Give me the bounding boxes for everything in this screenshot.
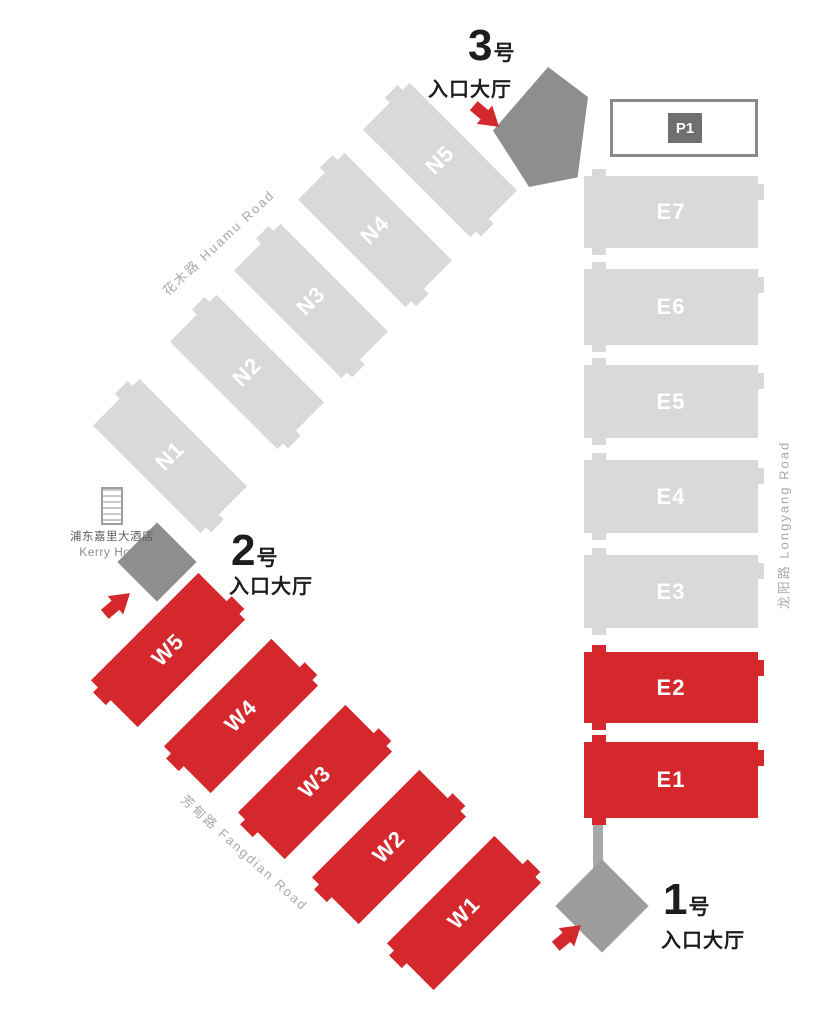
road-label-longyang: 龙阳路 Longyang Road [774,441,793,609]
entrance-3-digit: 3 [468,24,492,68]
hall-tab [757,563,764,579]
hall-w4-label: W4 [219,694,262,737]
entrance-2-unit: 号 [256,542,277,572]
hall-e6: E6 [584,269,758,345]
hall-n4-label: N4 [355,210,395,250]
entrance-2-arrow-icon [95,583,138,625]
hall-tab [757,277,764,293]
hall-w3-label: W3 [293,760,336,803]
hall-e6-label: E6 [657,294,686,320]
entrance-1-digit: 1 [663,878,687,922]
parking-p1-area: P1 [610,99,758,157]
hall-e4-label: E4 [657,484,686,510]
hall-tab [757,468,764,484]
hall-tab [757,660,764,676]
hotel-building-icon [101,487,123,525]
entrance-2-hall-label: 入口大厅 [229,570,313,599]
hall-e5-label: E5 [657,389,686,415]
entrance-3-unit: 号 [493,37,514,67]
entrance-1-number: 1 号 [663,878,709,922]
hall-n1-label: N1 [150,436,190,476]
hall-e3-label: E3 [657,579,686,605]
parking-p1-badge: P1 [668,113,702,143]
entrance-3-number: 3 号 [468,24,514,68]
hall-w1-label: W1 [442,891,485,934]
entrance-3-hall-label: 入口大厅 [428,73,512,102]
entrance-2-digit: 2 [231,529,255,573]
hall-e1-label: E1 [657,767,686,793]
entrance-2-number: 2 号 [231,529,277,573]
hall-e7-label: E7 [657,199,686,225]
hall-w2-label: W2 [367,825,410,868]
hall-tab [757,373,764,389]
hall-n3-label: N3 [291,281,331,321]
hall-tab [757,750,764,766]
venue-map: 花木路 Huamu Road 芳甸路 Fangdian Road 龙阳路 Lon… [0,0,821,1024]
hall-e7: E7 [584,176,758,248]
hall-w5-label: W5 [146,628,189,671]
hall-e1: E1 [584,742,758,818]
entrance-1-hall-label: 入口大厅 [661,924,745,953]
hall-tab [757,184,764,200]
hotel-name-cn: 浦东嘉里大酒店 [66,528,158,544]
hall-e3: E3 [584,555,758,628]
hall-e5: E5 [584,365,758,438]
kerry-hotel-marker: 浦东嘉里大酒店 Kerry Hotel [66,487,158,559]
hall-n5-label: N5 [420,140,460,180]
hall-e2-label: E2 [657,675,686,701]
hall-n2-label: N2 [227,352,267,392]
entrance-1-unit: 号 [688,891,709,921]
hotel-name-en: Kerry Hotel [66,545,158,559]
hall-e4: E4 [584,460,758,533]
hall-e2: E2 [584,652,758,723]
